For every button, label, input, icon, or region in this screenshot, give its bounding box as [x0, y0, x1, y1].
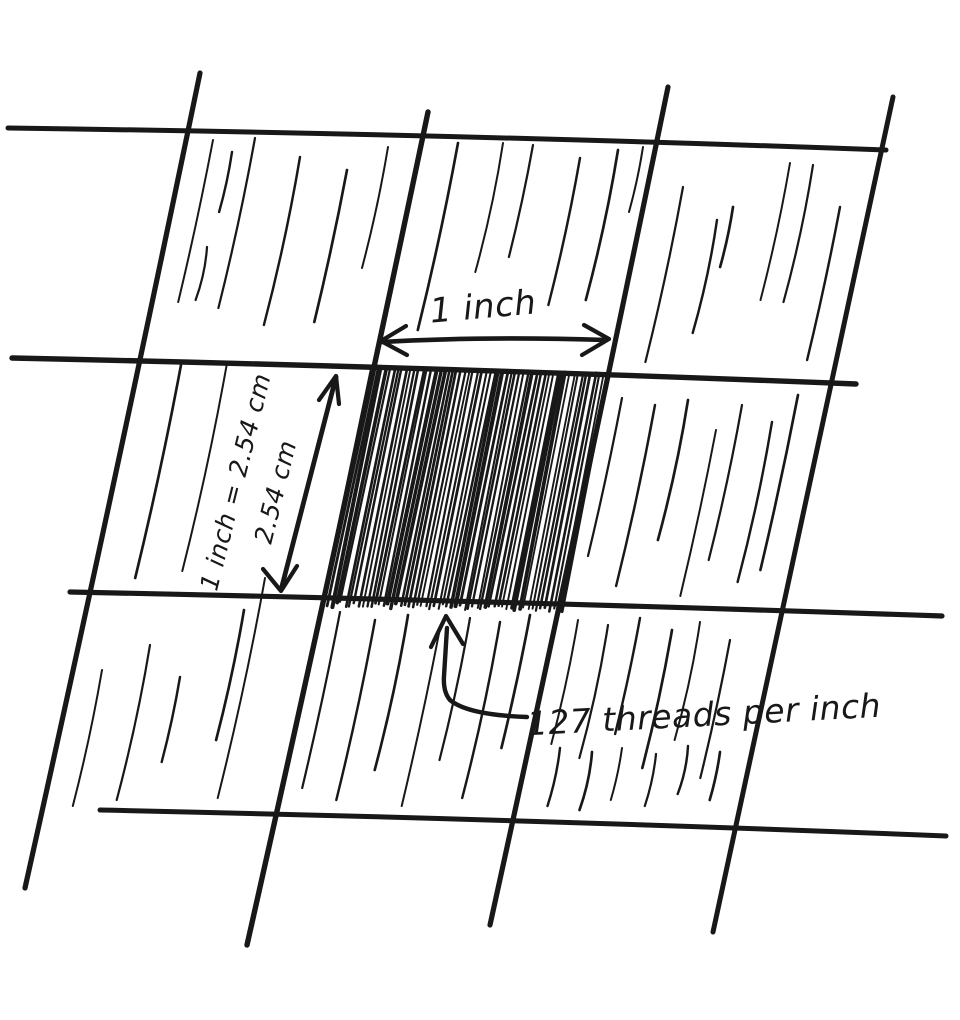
hatch-stroke	[588, 398, 622, 556]
thread-count-diagram: 1 inch 1 inch = 2.54 cm 2.54 cm 127 thre…	[0, 0, 960, 1020]
hatch-stroke	[784, 165, 814, 302]
hatch-stroke	[629, 147, 643, 212]
hatch-stroke	[807, 207, 840, 360]
hatch-stroke	[264, 157, 300, 325]
hatch-stroke	[218, 578, 265, 798]
hatch-stroke	[501, 615, 530, 748]
hatch-stroke	[548, 158, 580, 305]
hatch-stroke	[658, 400, 688, 540]
hatch-stroke	[402, 628, 440, 806]
hatch-stroke	[586, 150, 618, 300]
hatch-stroke	[616, 405, 655, 586]
hatch-stroke	[336, 620, 375, 800]
thread-line	[558, 376, 603, 612]
dense-thread-hatching	[323, 367, 608, 612]
hatch-stroke	[720, 207, 733, 267]
hatch-stroke	[509, 145, 533, 257]
arrowhead-bottom	[263, 566, 297, 591]
hatch-stroke	[710, 752, 720, 800]
hatch-stroke	[580, 752, 593, 810]
hatch-stroke	[73, 670, 102, 806]
hatch-stroke	[216, 610, 244, 740]
hatch-stroke	[196, 247, 207, 300]
hatch-stroke	[314, 170, 347, 322]
arrow-shaft	[382, 338, 606, 342]
hatch-stroke	[611, 748, 622, 800]
inch-width-label: 1 inch	[428, 282, 538, 331]
hatch-stroke	[362, 147, 388, 268]
hatch-stroke	[761, 163, 791, 300]
hatch-stroke	[135, 365, 181, 578]
hatch-stroke	[645, 187, 683, 362]
grid-line-horizontal-1	[8, 128, 886, 150]
hatch-stroke	[645, 754, 656, 806]
hatch-stroke	[302, 612, 340, 788]
hatch-stroke	[218, 138, 255, 308]
sketch-page: 1 inch 1 inch = 2.54 cm 2.54 cm 127 thre…	[0, 0, 960, 1020]
grid-line-horizontal-3	[70, 592, 942, 616]
grid-line-horizontal-4	[100, 810, 946, 836]
hatch-stroke	[117, 645, 150, 800]
grid-line-vertical-1	[25, 73, 200, 888]
hatch-stroke	[375, 615, 408, 770]
hatch-stroke	[475, 143, 503, 272]
hatch-stroke	[678, 746, 688, 794]
hatch-stroke	[738, 422, 772, 582]
inch-width-arrow	[381, 325, 609, 355]
threads-per-inch-label: 127 threads per inch	[526, 686, 882, 744]
hatch-stroke	[548, 748, 561, 806]
hatch-stroke	[219, 152, 232, 212]
hatch-stroke	[680, 430, 716, 596]
hatch-stroke	[693, 220, 717, 333]
hatch-stroke	[709, 405, 742, 560]
hatch-stroke	[760, 395, 798, 570]
hatch-stroke	[162, 677, 180, 762]
